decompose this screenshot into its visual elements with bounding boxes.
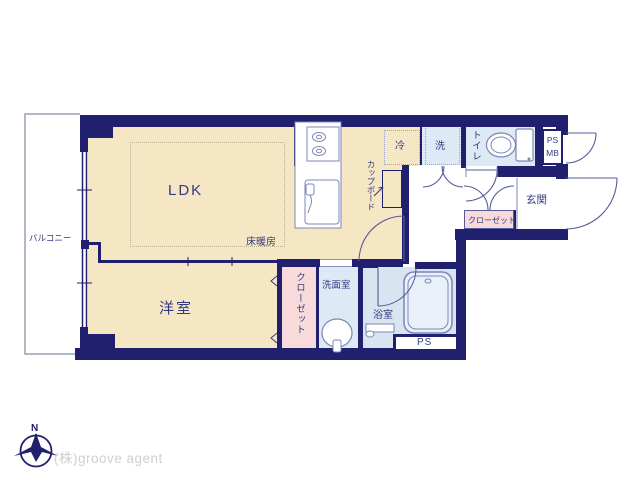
fixtures-layer — [0, 0, 640, 480]
bedroom-closet-label: クローゼット — [292, 272, 306, 346]
bedroom-label: 洋室 — [159, 297, 193, 318]
balcony-label: バルコニー — [29, 232, 71, 244]
pipe-space-label: PS — [417, 337, 432, 348]
hall-closet-label: クローゼット — [468, 215, 516, 226]
window-left — [77, 152, 92, 330]
washer-door-left — [423, 166, 444, 187]
compass-north-label: N — [31, 423, 38, 434]
hall-closet-door-left — [464, 186, 488, 210]
stove — [307, 127, 339, 161]
toilet-door — [466, 170, 497, 201]
partition-ticks — [188, 257, 232, 266]
cupboard-label: カップボード — [365, 160, 377, 214]
closet-door-chevrons — [271, 276, 277, 343]
toilet-label: トイレ — [468, 130, 482, 168]
entrance-door — [566, 178, 617, 229]
entrance-label: 玄関 — [526, 192, 547, 207]
compass — [14, 433, 58, 467]
psmb-door — [566, 133, 596, 163]
bathroom-label: 浴室 — [373, 306, 393, 321]
ldk-label: LDK — [168, 182, 203, 199]
washer-door-right — [442, 166, 463, 187]
washroom-sink — [322, 319, 352, 352]
washroom-label: 洗面室 — [322, 277, 351, 291]
bathtub — [366, 272, 452, 337]
hall-door — [359, 216, 404, 261]
kitchen-counter — [295, 122, 341, 228]
fridge-label: 冷 — [395, 137, 405, 152]
hall-closet-door-right — [490, 186, 514, 210]
floor-heating-label: 床暖房 — [246, 233, 276, 248]
company-name: (株)groove agent — [54, 447, 163, 467]
shower-drain — [366, 331, 374, 337]
washer-label: 洗 — [435, 137, 445, 152]
floor-plan: PS MB — [0, 0, 640, 480]
toilet-fixture — [487, 129, 534, 161]
